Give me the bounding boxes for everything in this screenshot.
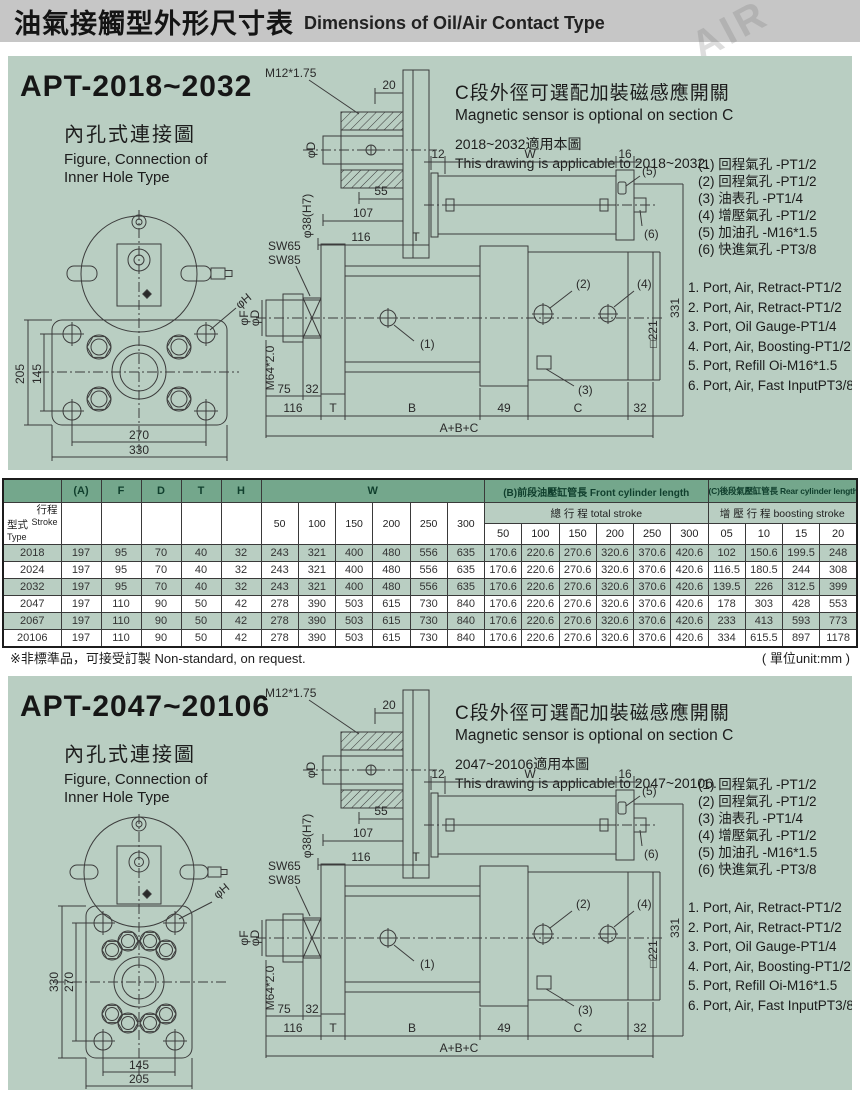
col-header-T: T <box>181 479 221 503</box>
corner-type-en: Type <box>7 532 27 542</box>
cell: 248 <box>820 545 857 562</box>
assembly-drawing: 12 W 16 (5) (6) 331 □221 (1) (2) (3) (4)… <box>238 148 693 448</box>
port-ref-3: (3) <box>578 383 593 397</box>
table-row: 2067197110905042278390503615730840170.62… <box>3 613 857 630</box>
list-item: 5. Port, Refill Oi-M16*1.5 <box>688 356 852 376</box>
cell: 170.6 <box>485 613 522 630</box>
cell: 840 <box>447 596 484 613</box>
dim-phiH: φH <box>211 880 233 901</box>
label-sw85: SW85 <box>268 253 301 267</box>
cell: 278 <box>261 596 298 613</box>
dim-16: 16 <box>618 147 632 161</box>
boost-stroke-header: 增 壓 行 程 boosting stroke <box>708 503 857 524</box>
w-col: 50 <box>261 503 298 545</box>
cell: 503 <box>336 613 373 630</box>
port-ref-2: (2) <box>576 897 591 911</box>
corner-stroke-zh: 行程 <box>37 504 58 516</box>
dim-75: 75 <box>277 382 291 396</box>
table-header-row1: (A) F D T H W (B)前段油壓缸管長 Front cylinder … <box>3 479 857 503</box>
dim-m12: M12*1.75 <box>265 686 317 700</box>
empty-cell <box>221 503 261 545</box>
cell: 139.5 <box>708 579 745 596</box>
list-item: 1. Port, Air, Retract-PT1/2 <box>688 898 852 918</box>
cell: 503 <box>336 630 373 648</box>
cell: 95 <box>101 545 141 562</box>
empty-cell <box>61 503 101 545</box>
port-ref-1: (1) <box>420 957 435 971</box>
cell: 635 <box>447 579 484 596</box>
cell: 220.6 <box>522 596 559 613</box>
cell: 370.6 <box>634 613 671 630</box>
cell: 220.6 <box>522 630 559 648</box>
b-col: 100 <box>522 524 559 545</box>
table-row: 201819795704032243321400480556635170.622… <box>3 545 857 562</box>
port-list-en: 1. Port, Air, Retract-PT1/22. Port, Air,… <box>688 898 852 1015</box>
c-col: 05 <box>708 524 745 545</box>
header-blank <box>3 479 61 503</box>
cell: 197 <box>61 630 101 648</box>
cell: 334 <box>708 630 745 648</box>
cell: 730 <box>410 630 447 648</box>
cell: 220.6 <box>522 579 559 596</box>
port-list-zh: (1) 回程氣孔 -PT1/2(2) 回程氣孔 -PT1/2(3) 油表孔 -P… <box>698 776 817 878</box>
cell: 840 <box>447 613 484 630</box>
total-stroke-header: 總 行 程 total stroke <box>485 503 709 524</box>
cell: 480 <box>373 545 410 562</box>
port-ref-4: (4) <box>637 897 652 911</box>
b-col: 200 <box>596 524 633 545</box>
cell: 110 <box>101 630 141 648</box>
cell: 428 <box>783 596 820 613</box>
dim-32a: 32 <box>305 1002 319 1016</box>
cell: 420.6 <box>671 545 708 562</box>
col-header-C-group: (C)後段氣壓缸管長 Rear cylinder length <box>708 479 857 503</box>
cell: 420.6 <box>671 630 708 648</box>
dim-32b: 32 <box>633 1021 647 1035</box>
cell: 503 <box>336 596 373 613</box>
dim-v-inner: 145 <box>30 364 44 384</box>
inner-en-line2: Inner Hole Type <box>64 169 207 187</box>
port-ref-4: (4) <box>637 277 652 291</box>
cell: 243 <box>261 562 298 579</box>
flange-labels: φH 330 270 145 205 <box>47 880 232 1086</box>
label-sw65: SW65 <box>268 859 301 873</box>
c-col: 10 <box>745 524 782 545</box>
spec-table-body: 201819795704032243321400480556635170.622… <box>3 545 857 648</box>
cell: 553 <box>820 596 857 613</box>
dim-abc: A+B+C <box>440 1041 479 1055</box>
dim-v-outer: 205 <box>13 364 27 384</box>
cell: 308 <box>820 562 857 579</box>
cell: 593 <box>783 613 820 630</box>
list-item: 6. Port, Air, Fast InputPT3/8 <box>688 376 852 396</box>
port-ref-1: (1) <box>420 337 435 351</box>
cell: 635 <box>447 562 484 579</box>
port-ref-5: (5) <box>642 164 657 178</box>
page: 油氣接觸型外形尺寸表 Dimensions of Oil/Air Contact… <box>0 0 860 1108</box>
inner-en-line2: Inner Hole Type <box>64 789 207 807</box>
cell: 370.6 <box>634 562 671 579</box>
list-item: (4) 增壓氣孔 -PT1/2 <box>698 827 817 844</box>
cell: 390 <box>298 613 335 630</box>
col-header-A: (A) <box>61 479 101 503</box>
cell: 50 <box>181 630 221 648</box>
port-list-en: 1. Port, Air, Retract-PT1/22. Port, Air,… <box>688 278 852 395</box>
cell: 32 <box>221 545 261 562</box>
cell: 110 <box>101 596 141 613</box>
table-row: 20106197110905042278390503615730840170.6… <box>3 630 857 648</box>
cell: 220.6 <box>522 613 559 630</box>
port-ref-5: (5) <box>642 784 657 798</box>
dim-m64: M64*2.0 <box>263 345 277 390</box>
dim-16: 16 <box>618 767 632 781</box>
cell: 197 <box>61 545 101 562</box>
dim-331: 331 <box>668 918 682 938</box>
cell: 897 <box>783 630 820 648</box>
dim-B: B <box>408 1021 416 1035</box>
cell: 615 <box>373 630 410 648</box>
cell: 270.6 <box>559 579 596 596</box>
list-item: (6) 快進氣孔 -PT3/8 <box>698 861 817 878</box>
table-header-row2: 行程Stroke 型式Type 50 100 150 200 250 300 總… <box>3 503 857 524</box>
cell: 320.6 <box>596 630 633 648</box>
cell: 615.5 <box>745 630 782 648</box>
port-ref-2: (2) <box>576 277 591 291</box>
row-type: 2018 <box>3 545 61 562</box>
table-row: 2047197110905042278390503615730840170.62… <box>3 596 857 613</box>
cell: 197 <box>61 596 101 613</box>
dim-sq221: □221 <box>646 320 660 348</box>
cell: 32 <box>221 562 261 579</box>
cell: 170.6 <box>485 579 522 596</box>
b-col: 150 <box>559 524 596 545</box>
unit-note: ( 單位unit:mm ) <box>762 648 850 667</box>
footnote-en: Non-standard, on request. <box>155 651 306 666</box>
footnote-zh: ※非標準品，可接受訂製 <box>10 651 151 666</box>
cell: 270.6 <box>559 613 596 630</box>
cell: 40 <box>181 562 221 579</box>
cell: 370.6 <box>634 579 671 596</box>
table-row: 203219795704032243321400480556635170.622… <box>3 579 857 596</box>
cell: 320.6 <box>596 613 633 630</box>
dim-h-inner: 145 <box>129 1058 149 1072</box>
inner-title-zh: 內孔式連接圖 <box>64 738 207 767</box>
cell: 420.6 <box>671 613 708 630</box>
cell: 116.5 <box>708 562 745 579</box>
list-item: (3) 油表孔 -PT1/4 <box>698 810 817 827</box>
cell: 270.6 <box>559 596 596 613</box>
flange-front-view: φH 330 270 145 205 <box>14 810 264 1090</box>
cell: 321 <box>298 562 335 579</box>
cell: 50 <box>181 596 221 613</box>
cell: 226 <box>745 579 782 596</box>
dim-116b: 116 <box>283 401 302 415</box>
spec-table: (A) F D T H W (B)前段油壓缸管長 Front cylinder … <box>2 478 858 648</box>
dim-20: 20 <box>382 78 396 92</box>
row-type: 2032 <box>3 579 61 596</box>
port-ref-6: (6) <box>644 227 659 241</box>
col-header-F: F <box>101 479 141 503</box>
col-header-W: W <box>261 479 485 503</box>
cell: 40 <box>181 579 221 596</box>
inner-hole-caption: 內孔式連接圖 Figure, Connection of Inner Hole … <box>64 738 207 807</box>
inner-title-zh: 內孔式連接圖 <box>64 118 207 147</box>
cell: 110 <box>101 613 141 630</box>
cell: 170.6 <box>485 596 522 613</box>
model-title: APT-2018~2032 <box>20 70 252 104</box>
cell: 270.6 <box>559 630 596 648</box>
cell: 312.5 <box>783 579 820 596</box>
flange-labels: φH 205 145 270 330 <box>13 290 254 457</box>
cell: 197 <box>61 579 101 596</box>
cell: 370.6 <box>634 630 671 648</box>
dim-75: 75 <box>277 1002 291 1016</box>
cell: 42 <box>221 596 261 613</box>
footnote: ※非標準品，可接受訂製 Non-standard, on request. <box>10 648 306 667</box>
cell: 278 <box>261 613 298 630</box>
assembly-drawing: 12 W 16 (5) (6) 331 □221 (1) (2) (3) (4)… <box>238 768 693 1068</box>
cell: 233 <box>708 613 745 630</box>
col-header-B-group: (B)前段油壓缸管長 Front cylinder length <box>485 479 709 503</box>
inner-title-en: Figure, Connection of Inner Hole Type <box>64 771 207 807</box>
cell: 420.6 <box>671 579 708 596</box>
list-item: 6. Port, Air, Fast InputPT3/8 <box>688 996 852 1016</box>
assembly-geometry <box>256 776 683 1058</box>
cell: 170.6 <box>485 630 522 648</box>
cell: 50 <box>181 613 221 630</box>
cell: 199.5 <box>783 545 820 562</box>
cell: 413 <box>745 613 782 630</box>
dim-49: 49 <box>497 1021 511 1035</box>
dim-32b: 32 <box>633 401 647 415</box>
list-item: 1. Port, Air, Retract-PT1/2 <box>688 278 852 298</box>
cell: 197 <box>61 613 101 630</box>
cell: 70 <box>141 545 181 562</box>
sensor-zh: C段外徑可選配加裝磁感應開關 <box>455 698 733 725</box>
list-item: (4) 增壓氣孔 -PT1/2 <box>698 207 817 224</box>
cell: 400 <box>336 562 373 579</box>
cell: 1178 <box>820 630 857 648</box>
cell: 615 <box>373 613 410 630</box>
cell: 321 <box>298 579 335 596</box>
dim-C: C <box>574 1021 583 1035</box>
dim-49: 49 <box>497 401 511 415</box>
w-col: 200 <box>373 503 410 545</box>
cell: 180.5 <box>745 562 782 579</box>
dim-h-outer: 205 <box>129 1072 149 1086</box>
dim-20: 20 <box>382 698 396 712</box>
cell: 95 <box>101 579 141 596</box>
cell: 399 <box>820 579 857 596</box>
col-header-H: H <box>221 479 261 503</box>
cell: 170.6 <box>485 562 522 579</box>
list-item: 3. Port, Oil Gauge-PT1/4 <box>688 317 852 337</box>
cell: 480 <box>373 579 410 596</box>
cell: 390 <box>298 596 335 613</box>
list-item: 2. Port, Air, Retract-PT1/2 <box>688 298 852 318</box>
cell: 556 <box>410 562 447 579</box>
list-item: (5) 加油孔 -M16*1.5 <box>698 844 817 861</box>
row-type: 2067 <box>3 613 61 630</box>
cell: 556 <box>410 545 447 562</box>
inner-en-line1: Figure, Connection of <box>64 771 207 789</box>
dim-m12: M12*1.75 <box>265 66 317 80</box>
dim-116b: 116 <box>283 1021 302 1035</box>
list-item: (1) 回程氣孔 -PT1/2 <box>698 156 817 173</box>
flange-geometry <box>24 210 239 461</box>
cell: 730 <box>410 596 447 613</box>
list-item: (6) 快進氣孔 -PT3/8 <box>698 241 817 258</box>
cell: 390 <box>298 630 335 648</box>
cell: 170.6 <box>485 545 522 562</box>
cell: 320.6 <box>596 562 633 579</box>
cell: 303 <box>745 596 782 613</box>
cell: 40 <box>181 545 221 562</box>
cell: 615 <box>373 596 410 613</box>
corner-type-zh: 型式 <box>7 519 28 531</box>
cell: 197 <box>61 562 101 579</box>
table-row: 202419795704032243321400480556635170.622… <box>3 562 857 579</box>
dim-m64: M64*2.0 <box>263 965 277 1010</box>
cell: 420.6 <box>671 596 708 613</box>
c-col: 20 <box>820 524 857 545</box>
cell: 400 <box>336 579 373 596</box>
list-item: (2) 回程氣孔 -PT1/2 <box>698 173 817 190</box>
dim-C: C <box>574 401 583 415</box>
cell: 635 <box>447 545 484 562</box>
cell: 270.6 <box>559 545 596 562</box>
flange-front-view: φH 205 145 270 330 <box>14 202 264 462</box>
w-col: 300 <box>447 503 484 545</box>
dim-32a: 32 <box>305 382 319 396</box>
cell: 32 <box>221 579 261 596</box>
dim-v-inner: 270 <box>62 972 76 992</box>
dim-Tb: T <box>329 1021 337 1035</box>
w-col: 100 <box>298 503 335 545</box>
cell: 220.6 <box>522 545 559 562</box>
dim-phiD2: φD <box>248 309 262 326</box>
cell: 320.6 <box>596 545 633 562</box>
sensor-en: Magnetic sensor is optional on section C <box>455 107 733 125</box>
dim-phiD2: φD <box>248 929 262 946</box>
cell: 420.6 <box>671 562 708 579</box>
cell: 321 <box>298 545 335 562</box>
dim-h-outer: 330 <box>129 443 149 457</box>
dim-331: 331 <box>668 298 682 318</box>
sensor-zh: C段外徑可選配加裝磁感應開關 <box>455 78 733 105</box>
label-sw65: SW65 <box>268 239 301 253</box>
list-item: 5. Port, Refill Oi-M16*1.5 <box>688 976 852 996</box>
assembly-geometry <box>256 156 683 438</box>
empty-cell <box>101 503 141 545</box>
flange-geometry <box>54 814 229 1089</box>
cell: 150.6 <box>745 545 782 562</box>
port-ref-3: (3) <box>578 1003 593 1017</box>
dim-h-inner: 270 <box>129 428 149 442</box>
cell: 278 <box>261 630 298 648</box>
cell: 400 <box>336 545 373 562</box>
section-apt-2047-20106: APT-2047~20106 內孔式連接圖 Figure, Connection… <box>8 676 852 1090</box>
col-header-D: D <box>141 479 181 503</box>
row-type: 20106 <box>3 630 61 648</box>
cell: 243 <box>261 545 298 562</box>
list-item: 4. Port, Air, Boosting-PT1/2 <box>688 957 852 977</box>
cell: 42 <box>221 613 261 630</box>
empty-cell <box>181 503 221 545</box>
cell: 95 <box>101 562 141 579</box>
row-type: 2024 <box>3 562 61 579</box>
c-col: 15 <box>783 524 820 545</box>
dim-v-outer: 330 <box>47 972 61 992</box>
cell: 90 <box>141 596 181 613</box>
b-col: 300 <box>671 524 708 545</box>
b-col: 250 <box>634 524 671 545</box>
sensor-en: Magnetic sensor is optional on section C <box>455 727 733 745</box>
w-col: 250 <box>410 503 447 545</box>
dim-abc: A+B+C <box>440 421 479 435</box>
assembly-labels: 12 W 16 (5) (6) 331 □221 (1) (2) (3) (4)… <box>237 767 682 1055</box>
dim-Tb: T <box>329 401 337 415</box>
port-list-zh: (1) 回程氣孔 -PT1/2(2) 回程氣孔 -PT1/2(3) 油表孔 -P… <box>698 156 817 258</box>
label-sw85: SW85 <box>268 873 301 887</box>
page-title-en: Dimensions of Oil/Air Contact Type <box>304 9 605 34</box>
cell: 556 <box>410 579 447 596</box>
cell: 243 <box>261 579 298 596</box>
page-title-zh: 油氣接觸型外形尺寸表 <box>14 2 294 41</box>
cell: 90 <box>141 613 181 630</box>
cell: 70 <box>141 562 181 579</box>
b-col: 50 <box>485 524 522 545</box>
list-item: (2) 回程氣孔 -PT1/2 <box>698 793 817 810</box>
cell: 320.6 <box>596 596 633 613</box>
cell: 220.6 <box>522 562 559 579</box>
cell: 840 <box>447 630 484 648</box>
dim-B: B <box>408 401 416 415</box>
dim-12: 12 <box>431 147 445 161</box>
cell: 480 <box>373 562 410 579</box>
list-item: 4. Port, Air, Boosting-PT1/2 <box>688 337 852 357</box>
section-apt-2018-2032: APT-2018~2032 內孔式連接圖 Figure, Connection … <box>8 56 852 470</box>
list-item: (3) 油表孔 -PT1/4 <box>698 190 817 207</box>
cell: 370.6 <box>634 545 671 562</box>
dim-W: W <box>524 147 536 161</box>
list-item: 3. Port, Oil Gauge-PT1/4 <box>688 937 852 957</box>
cell: 730 <box>410 613 447 630</box>
spec-table-zone: (A) F D T H W (B)前段油壓缸管長 Front cylinder … <box>0 478 860 648</box>
dim-W: W <box>524 767 536 781</box>
cell: 42 <box>221 630 261 648</box>
page-header: 油氣接觸型外形尺寸表 Dimensions of Oil/Air Contact… <box>0 0 860 42</box>
corner-stroke-en: Stroke <box>31 517 57 527</box>
port-ref-6: (6) <box>644 847 659 861</box>
dim-12: 12 <box>431 767 445 781</box>
cell: 70 <box>141 579 181 596</box>
cell: 320.6 <box>596 579 633 596</box>
cell: 244 <box>783 562 820 579</box>
list-item: (1) 回程氣孔 -PT1/2 <box>698 776 817 793</box>
assembly-labels: 12 W 16 (5) (6) 331 □221 (1) (2) (3) (4)… <box>237 147 682 435</box>
cell: 370.6 <box>634 596 671 613</box>
empty-cell <box>141 503 181 545</box>
row-type: 2047 <box>3 596 61 613</box>
corner-cell: 行程Stroke 型式Type <box>3 503 61 545</box>
cell: 773 <box>820 613 857 630</box>
cell: 90 <box>141 630 181 648</box>
inner-en-line1: Figure, Connection of <box>64 151 207 169</box>
cell: 102 <box>708 545 745 562</box>
w-col: 150 <box>336 503 373 545</box>
cell: 270.6 <box>559 562 596 579</box>
